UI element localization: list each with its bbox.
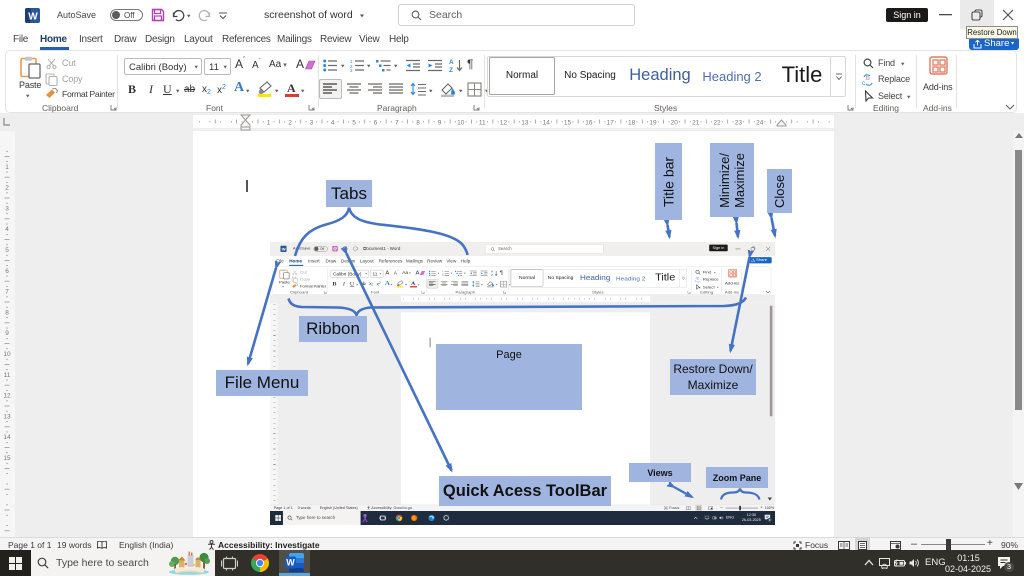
svg-text:23: 23 <box>735 120 743 127</box>
svg-text:13: 13 <box>3 413 11 420</box>
svg-text:11: 11 <box>479 120 486 127</box>
svg-text:3: 3 <box>442 275 444 276</box>
svg-text:3: 3 <box>350 68 353 72</box>
svg-text:15: 15 <box>564 120 572 127</box>
svg-text:20: 20 <box>671 120 679 127</box>
svg-text:9: 9 <box>5 330 9 337</box>
svg-text:15: 15 <box>3 455 11 462</box>
svg-text:2: 2 <box>288 120 292 127</box>
svg-text:4: 4 <box>331 120 335 127</box>
svg-text:13: 13 <box>521 120 529 127</box>
svg-text:12: 12 <box>500 120 508 127</box>
svg-text:22: 22 <box>713 120 721 127</box>
svg-text:11: 11 <box>4 372 11 379</box>
svg-text:19: 19 <box>649 120 657 127</box>
svg-text:9: 9 <box>438 120 442 127</box>
svg-text:Z: Z <box>491 273 493 276</box>
svg-text:4: 4 <box>5 226 9 233</box>
svg-text:3: 3 <box>310 120 314 127</box>
svg-text:W: W <box>282 246 286 251</box>
svg-text:12: 12 <box>3 393 11 400</box>
svg-text:5: 5 <box>5 247 9 254</box>
svg-text:W: W <box>286 558 295 568</box>
svg-text:6: 6 <box>374 120 378 127</box>
svg-text:Z: Z <box>449 67 453 73</box>
svg-text:16: 16 <box>585 120 593 127</box>
svg-text:5: 5 <box>352 120 356 127</box>
svg-text:10: 10 <box>457 120 465 127</box>
svg-text:1: 1 <box>5 164 9 171</box>
svg-text:7: 7 <box>5 289 9 296</box>
svg-text:6: 6 <box>5 268 9 275</box>
svg-text:14: 14 <box>543 120 551 127</box>
svg-text:14: 14 <box>3 434 11 441</box>
svg-text:24: 24 <box>756 120 764 127</box>
svg-text:8: 8 <box>5 309 9 316</box>
svg-text:W: W <box>28 12 38 23</box>
svg-text:7: 7 <box>395 120 399 127</box>
svg-text:17: 17 <box>607 120 615 127</box>
svg-text:1: 1 <box>267 120 271 127</box>
svg-text:18: 18 <box>628 120 636 127</box>
svg-text:2: 2 <box>5 185 9 192</box>
svg-text:8: 8 <box>416 120 420 127</box>
svg-text:3: 3 <box>5 205 9 212</box>
svg-text:10: 10 <box>3 351 11 358</box>
svg-text:21: 21 <box>692 120 700 127</box>
svg-text:A: A <box>449 59 454 66</box>
